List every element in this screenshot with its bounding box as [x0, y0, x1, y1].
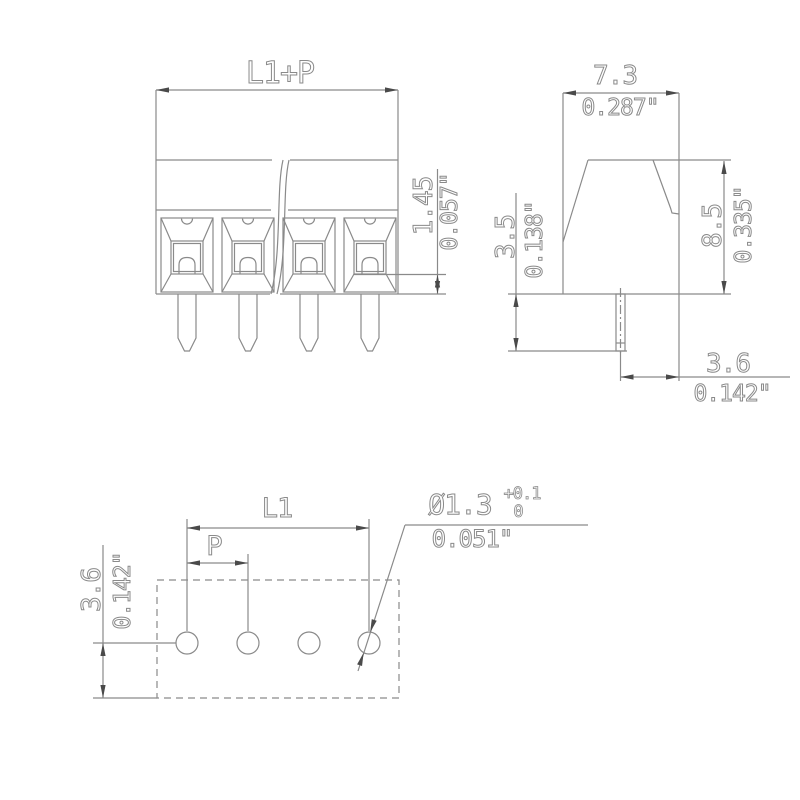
arrowhead: [100, 685, 105, 698]
dim-text-depth-mm: 1.45: [409, 177, 439, 236]
dim-text-pinoffset-mm: 3.6: [706, 349, 750, 379]
dim-text-edge-in: 0.142": [110, 552, 136, 629]
arrowhead: [721, 281, 726, 294]
dim-text-width-mm: 7.3: [593, 61, 637, 91]
footprint-view: L1 P 3.6 0.142" Ø1.3 +0.1 0 0.051": [77, 484, 588, 698]
drill-hole-1: [176, 632, 198, 654]
technical-drawing-canvas: 1.45 0.057" L1+P 7.3 0.287" 8.5 0.335": [0, 0, 800, 800]
arrowhead: [356, 525, 369, 530]
dim-text-height-mm: 8.5: [698, 204, 728, 248]
arrowhead: [100, 643, 105, 656]
body-rear-slant: [653, 160, 679, 214]
dim-text-edge-mm: 3.6: [77, 568, 107, 612]
body-outline-dashed: [157, 580, 399, 698]
dim-text-hole-dia: Ø1.3: [428, 488, 491, 521]
terminal-port-4: [344, 218, 396, 292]
dim-text-width-label: L1+P: [246, 56, 314, 91]
solder-pin-2: [239, 294, 257, 351]
arrowhead: [666, 374, 679, 379]
arrowhead: [156, 87, 169, 92]
dim-text-pinoffset-in: 0.142": [693, 381, 770, 407]
arrowhead: [621, 374, 634, 379]
terminal-port-2: [222, 218, 274, 292]
dim-text-pinlen-in: 0.138": [522, 201, 548, 278]
dim-text-hole-tol-upper: +0.1: [504, 484, 542, 504]
terminal-port-1: [161, 218, 213, 292]
dim-text-depth-in: 0.057": [437, 173, 463, 250]
leader-line: [358, 525, 405, 671]
arrowhead: [721, 161, 726, 174]
arrowhead: [513, 338, 518, 351]
front-view: 1.45 0.057" L1+P: [156, 56, 463, 351]
dim-text-height-in: 0.335": [731, 186, 757, 263]
solder-pin-3: [300, 294, 318, 351]
dim-text-width-in: 0.287": [581, 95, 658, 121]
arrowhead: [385, 87, 398, 92]
arrowhead: [563, 90, 576, 95]
arrowhead: [513, 294, 518, 307]
dim-text-l1: L1: [262, 493, 293, 524]
arrowhead: [187, 525, 200, 530]
arrowhead: [666, 90, 679, 95]
terminal-port-3: [283, 218, 335, 292]
dim-text-hole-tol-lower: 0: [513, 502, 523, 522]
dim-text-p: P: [206, 531, 222, 562]
arrowhead: [357, 652, 366, 666]
solder-pin-4: [361, 294, 379, 351]
arrowhead: [235, 560, 248, 565]
dim-text-hole-in: 0.051": [432, 525, 513, 553]
side-view: 7.3 0.287" 8.5 0.335" 3.5 0.138" 3.6 0.1…: [491, 61, 790, 407]
dim-text-pinlen-mm: 3.5: [491, 215, 521, 259]
drill-hole-2: [237, 632, 259, 654]
drill-hole-3: [298, 632, 320, 654]
body-front-slant: [563, 160, 588, 242]
solder-pin-1: [178, 294, 196, 351]
arrowhead: [187, 560, 200, 565]
